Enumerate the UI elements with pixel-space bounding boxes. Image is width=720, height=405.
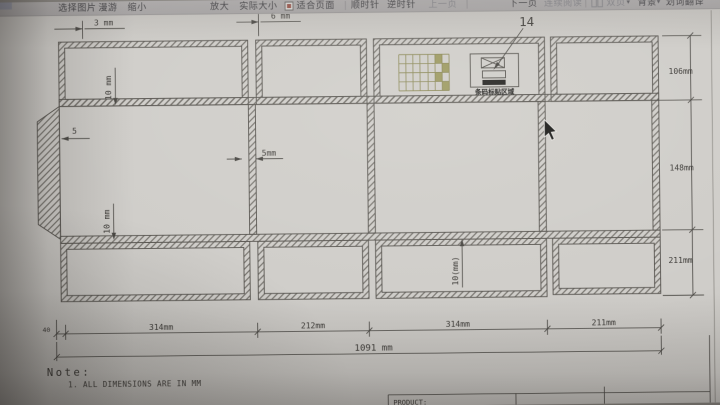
mouse-cursor-icon xyxy=(544,119,556,140)
dim-right-211mm: 211mm xyxy=(668,256,692,265)
dimension-10mm-bottom: 10 mm xyxy=(103,204,117,240)
page-edge-line xyxy=(711,10,715,402)
toolbar-item-pan[interactable]: 漫游 xyxy=(98,1,117,14)
dim-right-148mm: 148mm xyxy=(669,163,693,172)
screen-content: 选择图片 漫游 缩小 放大 实际大小 适合页面 顺时针 逆时针 上一页 下一页 … xyxy=(0,0,720,405)
carton-dieline-drawing: 条码标贴区域 14 3 mm 6 mm xyxy=(0,0,720,405)
photographed-screen: 选择图片 漫游 缩小 放大 实际大小 适合页面 顺时针 逆时针 上一页 下一页 … xyxy=(0,0,720,405)
dimension-chain-right: 106mm 148mm 211mm xyxy=(656,32,704,298)
toolbar-item-rotate-cw[interactable]: 顺时针 xyxy=(351,0,380,12)
dimension-5: 5 xyxy=(61,126,89,141)
dimension-chain-bottom: 40 314mm 212mm 314mm 211mm xyxy=(42,314,664,341)
dim-bottom-314mm-1: 314mm xyxy=(149,323,173,332)
dim-bottom-212mm: 212mm xyxy=(301,321,325,330)
dimension-total-width: 1091 mm xyxy=(54,336,665,362)
panel-dividers xyxy=(59,100,660,236)
window-corner-tint xyxy=(0,2,12,9)
drawing-notes: Note: 1. ALL DIMENSIONS ARE IN MM xyxy=(47,366,202,390)
toolbar-item-zoom-in[interactable]: 放大 xyxy=(210,0,229,13)
toolbar-separator xyxy=(345,1,346,10)
dim-bottom-211mm: 211mm xyxy=(592,318,616,327)
dim-10mm-top-label: 10 mm xyxy=(104,76,113,100)
toolbar-item-background[interactable]: 背景 xyxy=(638,0,657,9)
dimension-6mm: 6 mm xyxy=(236,12,301,37)
toolbar-item-continuous-read[interactable]: 连续阅读 xyxy=(544,0,582,10)
toolbar-item-two-page[interactable]: 双页 xyxy=(606,0,625,9)
stamp-label: 条码标贴区域 xyxy=(475,87,515,96)
toolbar-item-zoom-out[interactable]: 缩小 xyxy=(128,1,147,14)
dim-3mm-label: 3 mm xyxy=(94,19,114,28)
toolbar-item-rotate-ccw[interactable]: 逆时针 xyxy=(387,0,416,12)
toolbar-item-fit-page[interactable]: 适合页面 xyxy=(297,0,335,13)
bottom-flap-row xyxy=(61,237,661,302)
toolbar-item-prev-page[interactable]: 上一页 xyxy=(428,0,457,11)
dim-10mm-bottom-label: 10 mm xyxy=(103,209,112,233)
dimension-3mm: 3 mm xyxy=(54,18,125,39)
caret-down-icon[interactable]: ▾ xyxy=(657,0,661,9)
two-page-icon[interactable] xyxy=(591,0,603,7)
dim-total-1091mm: 1091 mm xyxy=(354,344,393,354)
dim-right-106mm: 106mm xyxy=(668,67,692,76)
note-line-1: 1. ALL DIMENSIONS ARE IN MM xyxy=(68,379,201,389)
fold-line-strips xyxy=(59,93,660,243)
dim-5mm-label: 5mm xyxy=(262,149,277,158)
toolbar-item-select-image[interactable]: 选择图片 xyxy=(58,2,96,15)
title-block: PRODUCT: xyxy=(388,335,711,405)
callout-14-label: 14 xyxy=(519,14,534,29)
toolbar-item-word-translate[interactable]: 划词翻译 xyxy=(666,0,704,9)
note-title: Note: xyxy=(47,367,91,379)
dim-bottom-314mm-2: 314mm xyxy=(446,320,470,329)
caret-down-icon[interactable]: ▾ xyxy=(626,0,630,9)
toolbar-item-actual-size[interactable]: 实际大小 xyxy=(239,0,277,13)
shipping-mark-stamp: 条码标贴区域 xyxy=(470,53,519,96)
dim-5-label: 5 xyxy=(72,127,77,136)
toolbar-separator xyxy=(585,0,586,7)
toolbar-separator xyxy=(467,0,468,9)
toolbar-item-next-page[interactable]: 下一页 xyxy=(509,0,538,10)
glue-flap xyxy=(37,107,61,240)
dim-10mm-mid-label: 10(mm) xyxy=(451,256,460,285)
dim-bottom-40: 40 xyxy=(42,326,50,334)
fit-page-icon[interactable] xyxy=(284,1,293,10)
titleblock-product-label: PRODUCT: xyxy=(393,398,427,405)
